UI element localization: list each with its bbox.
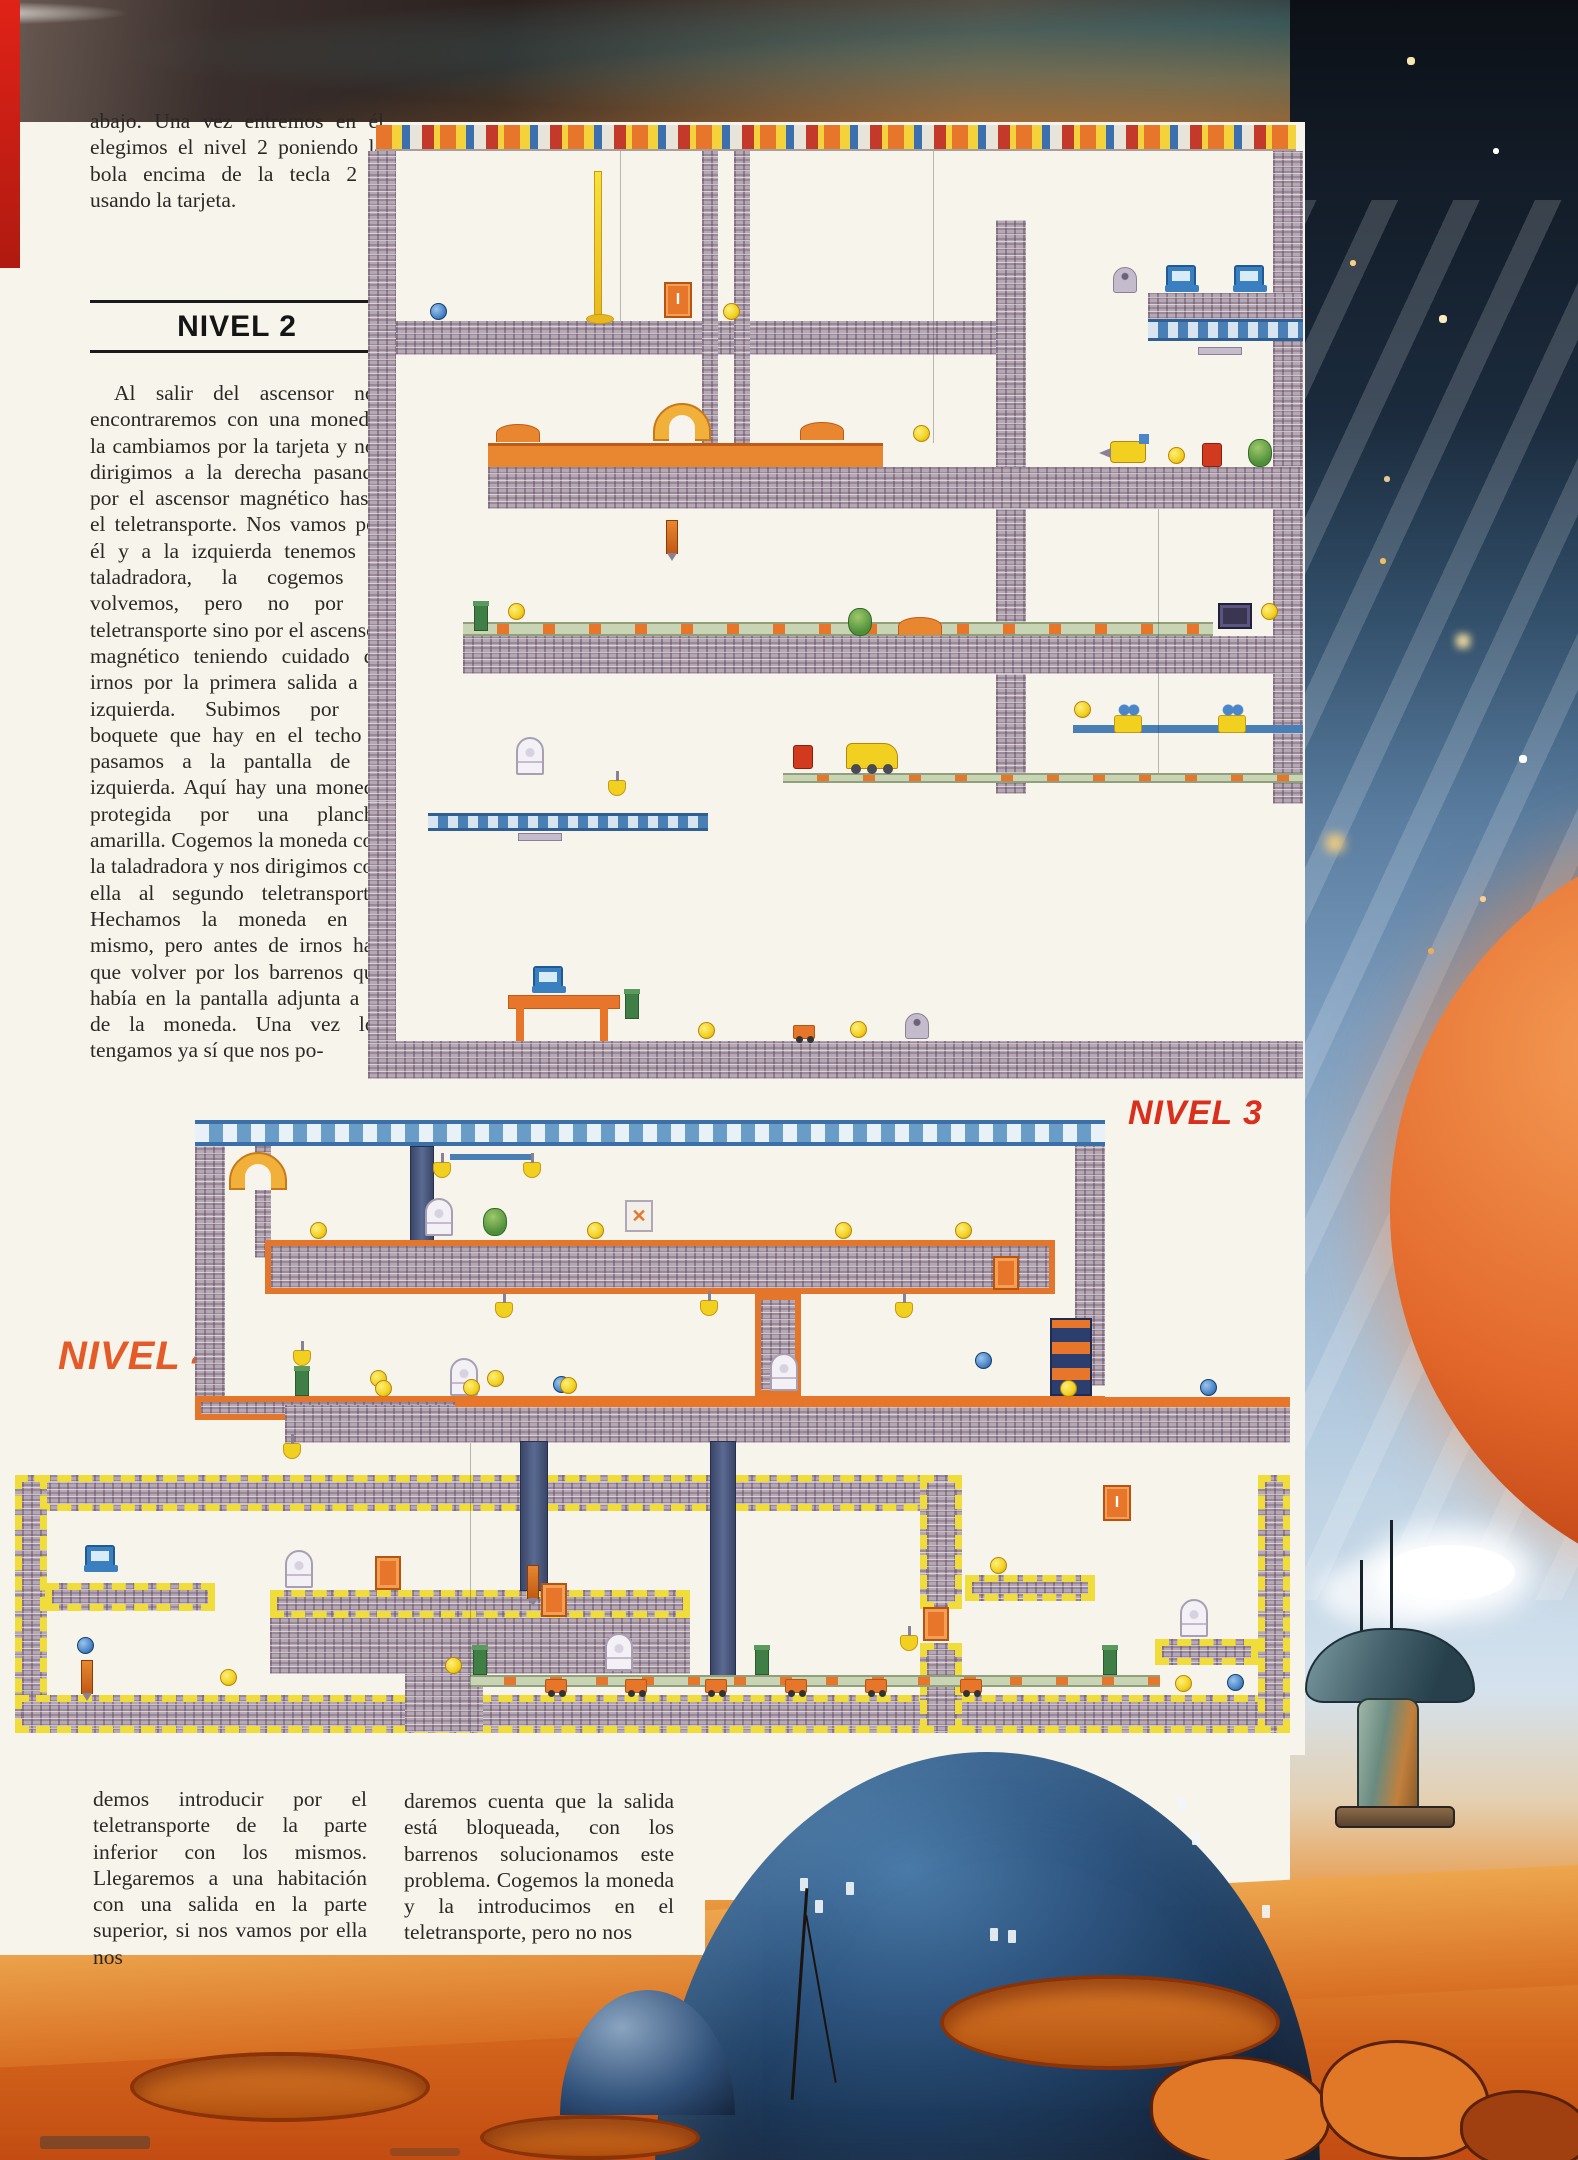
coin-sprite — [955, 1222, 972, 1239]
map-wall-brickY — [920, 1643, 962, 1733]
hoist-sprite — [1198, 347, 1242, 355]
tower-base — [1335, 1806, 1455, 1828]
crate-sprite — [375, 1556, 401, 1590]
hoist-sprite — [518, 833, 562, 841]
ball-sprite — [430, 303, 447, 320]
map-wall-line — [470, 1443, 471, 1733]
mound-sprite — [898, 617, 942, 635]
coin-sprite — [698, 1022, 715, 1039]
coin-sprite — [1175, 1675, 1192, 1692]
lamp-sprite — [594, 171, 602, 321]
map-wall-brickY — [15, 1475, 960, 1511]
creature-sprite — [1248, 439, 1272, 467]
arch-sprite — [229, 1152, 287, 1190]
spike-sprite — [666, 520, 678, 554]
dome-window — [1178, 1798, 1186, 1811]
cart-sprite — [785, 1679, 807, 1693]
map-wall-brickY — [15, 1695, 1290, 1733]
dome-window — [1262, 1905, 1270, 1918]
robot-sprite — [905, 1013, 929, 1039]
coin-sprite — [375, 1380, 392, 1397]
dome-window — [1192, 1832, 1200, 1845]
mound-sprite — [496, 424, 540, 442]
map-wall-belt — [783, 773, 1303, 783]
coin-sprite — [310, 1222, 327, 1239]
cart-sprite — [705, 1679, 727, 1693]
door-sprite: I — [1103, 1485, 1131, 1521]
pulley-sprite — [1218, 715, 1246, 733]
bell-sprite — [523, 1162, 541, 1178]
robot-sprite — [1113, 267, 1137, 293]
coin-sprite — [723, 303, 740, 320]
creature-sprite — [848, 608, 872, 636]
map-wall-brick — [368, 1041, 1303, 1079]
map-wall-brickY — [1155, 1639, 1258, 1665]
redbot-sprite — [793, 745, 813, 769]
map-wall-brickY — [965, 1575, 1095, 1601]
computer-sprite — [1234, 265, 1264, 287]
map-wall-brick — [702, 151, 718, 451]
tower-cap — [1305, 1628, 1475, 1703]
post-sprite — [473, 1649, 487, 1675]
map-wall-decor — [376, 125, 1296, 151]
computer-sprite — [533, 966, 563, 988]
coin-sprite — [445, 1657, 462, 1674]
map-wall-brick — [368, 801, 396, 1041]
spike-sprite — [527, 1565, 539, 1599]
star-field — [1290, 0, 1292, 2]
magazine-page: abajo. Una vez entremos en él elegimos e… — [0, 0, 1578, 2160]
map-wall-truss — [195, 1120, 1105, 1146]
map-wall-line — [933, 151, 934, 443]
map-wall-brick — [285, 1405, 1290, 1443]
map-wall-brickY — [920, 1475, 962, 1609]
bell-sprite — [608, 780, 626, 796]
map-wall-brickY — [45, 1583, 215, 1611]
map-wall-dirt — [488, 443, 883, 467]
coin-sprite — [587, 1222, 604, 1239]
dome-window — [846, 1882, 854, 1895]
pulley-sprite — [1114, 715, 1142, 733]
map-wall-brick — [1273, 674, 1303, 804]
ghost-sprite — [770, 1353, 798, 1391]
coin-sprite — [463, 1379, 480, 1396]
map-wall-line — [620, 151, 621, 321]
map-wall-girder — [428, 813, 708, 831]
observation-tower — [1295, 1520, 1495, 1840]
map-wall-shaft — [710, 1441, 736, 1676]
coin-sprite — [508, 603, 525, 620]
cart-sprite — [625, 1679, 647, 1693]
bell-sprite — [283, 1443, 301, 1459]
map-wall-brick — [195, 1146, 225, 1420]
ball-sprite — [77, 1637, 94, 1654]
crate-sprite — [993, 1256, 1019, 1290]
map-wall-belt — [463, 622, 1213, 636]
coin-sprite — [1074, 701, 1091, 718]
map-wall-brick — [488, 467, 1303, 509]
rock — [1460, 2090, 1578, 2160]
coin-sprite — [1060, 1380, 1077, 1397]
section-heading-block: NIVEL 2 — [90, 300, 384, 353]
bottom-column-right: daremos cuenta que la salida está bloque… — [404, 1788, 674, 1946]
bottom-column-left: demos introducir por el teletransporte d… — [93, 1786, 367, 1970]
map-wall-orange — [455, 1397, 1290, 1407]
door-sprite: I — [664, 282, 692, 318]
dome-window — [815, 1900, 823, 1913]
crater — [480, 2115, 700, 2160]
drill-sprite — [1110, 441, 1146, 463]
label-nivel-3: NIVEL 3 — [1128, 1094, 1263, 1133]
computer-sprite — [85, 1545, 115, 1567]
map-wall-brick — [463, 636, 1303, 674]
dome-window — [990, 1928, 998, 1941]
body-paragraph: Al salir del ascensor nos encontraremos … — [90, 380, 384, 1064]
coin-sprite — [220, 1669, 237, 1686]
cart-sprite — [793, 1025, 815, 1039]
ghost-sprite — [605, 1633, 633, 1671]
page-edge-red-strip — [0, 0, 20, 268]
coin-sprite — [913, 425, 930, 442]
dome-window — [1008, 1930, 1016, 1943]
tower-antenna — [1390, 1520, 1393, 1635]
map-wall-cable — [1073, 725, 1303, 733]
coin-sprite — [990, 1557, 1007, 1574]
crater — [130, 2052, 430, 2122]
ghost-sprite — [1180, 1599, 1208, 1637]
post-sprite — [625, 993, 639, 1019]
ball-sprite — [975, 1352, 992, 1369]
intro-paragraph: abajo. Una vez entremos en él elegimos e… — [90, 108, 384, 213]
signx-sprite: ✕ — [625, 1200, 653, 1232]
ghost-sprite — [285, 1550, 313, 1588]
crate-sprite — [923, 1607, 949, 1641]
coin-sprite — [1168, 447, 1185, 464]
map-nivel3: ✕ — [195, 1112, 1105, 1420]
map-nivel2: I — [368, 125, 1303, 1080]
creature-sprite — [483, 1208, 507, 1236]
map-wall-girder — [1148, 319, 1303, 341]
map-wall-brickY — [270, 1590, 690, 1618]
map-wall-cable — [450, 1154, 532, 1160]
coin-sprite — [850, 1021, 867, 1038]
cart-sprite — [865, 1679, 887, 1693]
map-wall-brick — [368, 151, 396, 801]
bell-sprite — [495, 1302, 513, 1318]
ghost-sprite — [516, 737, 544, 775]
bell-sprite — [900, 1635, 918, 1651]
page-smudge — [390, 2148, 460, 2156]
post-sprite — [755, 1649, 769, 1675]
tv-sprite — [1218, 603, 1252, 629]
map-wall-brick — [396, 321, 996, 355]
ball-sprite — [1227, 1674, 1244, 1691]
map-wall-brick — [1273, 151, 1303, 293]
bell-sprite — [700, 1300, 718, 1316]
map-wall-brick — [1273, 509, 1303, 636]
map-nivel4: I — [15, 1385, 1290, 1735]
map-wall-brickO — [265, 1240, 1055, 1294]
map-wall-brickY — [1258, 1475, 1290, 1733]
map-wall-line — [1158, 509, 1159, 773]
map-wall-brick — [734, 151, 750, 451]
desk-sprite — [508, 995, 618, 1041]
crate-sprite — [541, 1583, 567, 1617]
coin-sprite — [560, 1377, 577, 1394]
cart-sprite — [545, 1679, 567, 1693]
post-sprite — [1103, 1649, 1117, 1675]
spike-sprite — [81, 1660, 93, 1694]
page-smudge — [40, 2136, 150, 2149]
computer-sprite — [1166, 265, 1196, 287]
map-wall-brick — [1148, 293, 1303, 319]
section-heading: NIVEL 2 — [90, 310, 384, 344]
tower-body — [1357, 1698, 1419, 1812]
ghost-sprite — [425, 1198, 453, 1236]
coin-sprite — [835, 1222, 852, 1239]
dozer-sprite — [846, 743, 898, 769]
post-sprite — [474, 605, 488, 631]
cart-sprite — [960, 1679, 982, 1693]
bell-sprite — [895, 1302, 913, 1318]
map-wall-belt — [470, 1675, 1160, 1687]
map-wall-brick — [996, 509, 1026, 636]
label-nivel-4: NIVEL 4 — [58, 1334, 215, 1379]
coin-sprite — [1261, 603, 1278, 620]
mound-sprite — [800, 422, 844, 440]
map-wall-brick — [1273, 341, 1303, 467]
redbot-sprite — [1202, 443, 1222, 467]
bell-sprite — [293, 1350, 311, 1366]
ball-sprite — [1200, 1379, 1217, 1396]
bell-sprite — [433, 1162, 451, 1178]
